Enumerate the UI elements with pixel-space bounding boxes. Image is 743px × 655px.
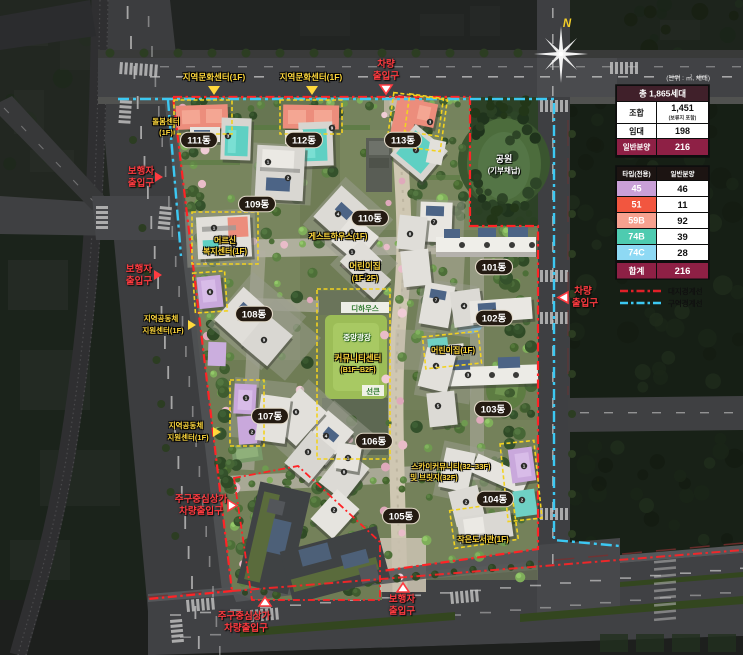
svg-text:216: 216 (675, 266, 691, 277)
svg-text:차량: 차량 (574, 285, 592, 297)
svg-text:차량: 차량 (377, 58, 395, 70)
svg-text:보행자: 보행자 (389, 593, 415, 605)
svg-text:차량출입구: 차량출입구 (224, 622, 268, 634)
svg-text:28: 28 (677, 248, 688, 259)
svg-text:105동: 105동 (389, 511, 414, 522)
svg-text:출입구: 출입구 (128, 177, 154, 189)
svg-text:113동: 113동 (391, 135, 415, 146)
svg-text:일반분양: 일반분양 (671, 169, 695, 178)
svg-text:주구중심상가: 주구중심상가 (218, 610, 271, 622)
svg-text:39: 39 (677, 232, 688, 243)
svg-text:107동: 107동 (258, 411, 283, 422)
svg-text:차량출입구: 차량출입구 (179, 505, 223, 517)
svg-text:198: 198 (675, 126, 690, 136)
svg-text:109동: 109동 (245, 199, 270, 210)
svg-text:111동: 111동 (187, 135, 211, 146)
svg-text:지원센터(1F): 지원센터(1F) (167, 432, 209, 442)
svg-text:74C: 74C (628, 248, 645, 258)
svg-text:216: 216 (675, 142, 690, 152)
svg-text:45: 45 (631, 184, 641, 194)
svg-text:어르신: 어르신 (214, 235, 236, 245)
svg-text:지역공동체: 지역공동체 (169, 420, 204, 430)
svg-text:108동: 108동 (242, 309, 267, 320)
svg-text:101동: 101동 (482, 262, 507, 273)
svg-text:11: 11 (677, 200, 688, 211)
svg-text:51: 51 (631, 200, 641, 210)
svg-text:46: 46 (677, 184, 688, 195)
svg-text:타입(전용): 타입(전용) (622, 169, 650, 178)
svg-text:작은도서관(1F): 작은도서관(1F) (457, 534, 509, 544)
svg-text:104동: 104동 (483, 494, 508, 505)
svg-text:복지센터(1F): 복지센터(1F) (203, 246, 247, 256)
svg-text:스카이커뮤니티(32~33F): 스카이커뮤니티(32~33F) (412, 461, 491, 471)
svg-text:및 브릿지(32F): 및 브릿지(32F) (410, 472, 458, 482)
svg-text:(1F): (1F) (159, 128, 173, 137)
svg-text:지역문화센터(1F): 지역문화센터(1F) (280, 72, 343, 82)
svg-text:어린이집: 어린이집 (349, 261, 380, 271)
svg-text:어린이집(1F): 어린이집(1F) (431, 345, 475, 355)
svg-text:106동: 106동 (362, 436, 387, 447)
svg-text:출입구: 출입구 (126, 275, 152, 287)
svg-text:103동: 103동 (481, 404, 506, 415)
svg-text:(단위 : ㎡, 세대): (단위 : ㎡, 세대) (666, 73, 710, 82)
svg-text:출입구: 출입구 (389, 605, 415, 617)
svg-text:보행자: 보행자 (128, 165, 154, 177)
svg-text:합계: 합계 (629, 266, 645, 276)
svg-text:대지경계선: 대지경계선 (668, 286, 703, 296)
svg-text:102동: 102동 (482, 313, 507, 324)
svg-text:112동: 112동 (292, 135, 316, 146)
svg-text:조합: 조합 (629, 107, 644, 117)
svg-text:N: N (563, 18, 572, 30)
svg-text:(B1F~B2F): (B1F~B2F) (340, 367, 375, 374)
svg-text:92: 92 (677, 216, 688, 227)
svg-text:1,451: 1,451 (671, 103, 694, 113)
svg-text:출입구: 출입구 (572, 297, 598, 309)
svg-text:커뮤니티센터: 커뮤니티센터 (335, 353, 382, 363)
svg-text:(1F·2F): (1F·2F) (352, 274, 379, 283)
svg-text:돌봄센터: 돌봄센터 (152, 116, 180, 126)
svg-text:74B: 74B (628, 232, 645, 242)
svg-text:공원: 공원 (496, 153, 513, 164)
svg-text:임대: 임대 (629, 126, 644, 136)
svg-text:총 1,865세대: 총 1,865세대 (639, 89, 686, 99)
svg-text:중앙광장: 중앙광장 (343, 332, 371, 342)
svg-text:지역공동체: 지역공동체 (144, 313, 179, 323)
svg-text:게스트하우스(1F): 게스트하우스(1F) (309, 231, 368, 241)
svg-text:(기부채납): (기부채납) (488, 165, 521, 175)
svg-text:110동: 110동 (358, 213, 382, 224)
svg-text:보행자: 보행자 (126, 263, 152, 275)
svg-text:일반분양: 일반분양 (623, 142, 651, 152)
svg-text:(보류지 포함): (보류지 포함) (669, 115, 697, 122)
svg-text:지원센터(1F): 지원센터(1F) (142, 325, 184, 335)
svg-text:선큰: 선큰 (366, 386, 380, 396)
svg-text:디하우스: 디하우스 (351, 303, 379, 313)
svg-text:구역경계선: 구역경계선 (668, 298, 703, 308)
svg-text:지역문화센터(1F): 지역문화센터(1F) (183, 72, 246, 82)
svg-text:59B: 59B (628, 216, 645, 226)
svg-text:주구중심상가: 주구중심상가 (175, 493, 228, 505)
svg-text:출입구: 출입구 (373, 70, 399, 82)
